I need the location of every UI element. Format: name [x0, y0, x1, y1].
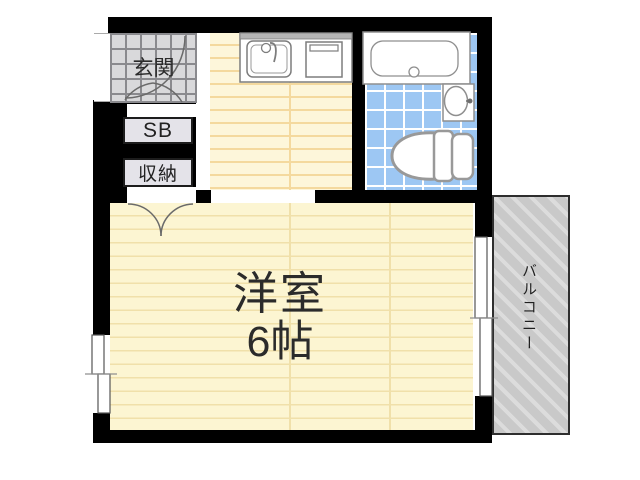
bathtub-icon [363, 32, 470, 84]
fixtures-layer [0, 0, 640, 480]
main-room-label: 洋室 6帖 [160, 270, 400, 365]
sliding-window-left [85, 335, 117, 413]
toilet-icon [392, 131, 473, 181]
closet-door-swing-icon [128, 204, 193, 236]
washbasin-icon [443, 84, 474, 121]
main-room-size-label: 6帖 [160, 319, 400, 365]
main-room-name: 洋室 [160, 270, 400, 319]
entrance-label: 玄関 [110, 52, 197, 82]
stove-icon [306, 42, 342, 77]
sliding-window-right [470, 237, 498, 396]
kitchen-sink-icon [247, 41, 291, 77]
balcony-label: バルコニー [518, 263, 539, 381]
floor-plan: SB 収納 [0, 0, 640, 480]
